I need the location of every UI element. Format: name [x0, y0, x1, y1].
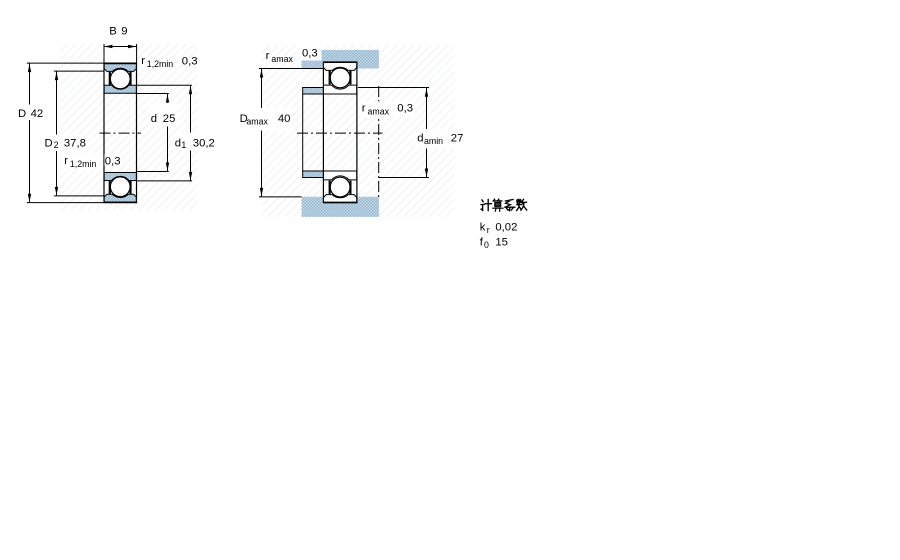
svg-text:r: r — [64, 155, 68, 167]
svg-text:0: 0 — [484, 240, 489, 250]
svg-text:37,8: 37,8 — [64, 137, 86, 149]
svg-text:15: 15 — [495, 237, 508, 249]
svg-text:0,02: 0,02 — [495, 222, 517, 234]
svg-text:D: D — [18, 108, 26, 120]
svg-text:r: r — [141, 55, 145, 67]
svg-text:d: d — [151, 113, 157, 125]
svg-text:2: 2 — [54, 140, 59, 150]
svg-text:0,3: 0,3 — [105, 155, 121, 167]
svg-text:r: r — [362, 103, 366, 115]
svg-text:1,2min: 1,2min — [147, 59, 174, 69]
svg-text:amax: amax — [368, 106, 390, 116]
svg-text:amax: amax — [271, 54, 293, 64]
svg-text:D: D — [45, 137, 53, 149]
svg-text:40: 40 — [278, 113, 291, 125]
svg-text:k: k — [480, 222, 486, 234]
svg-text:1,2min: 1,2min — [70, 159, 97, 169]
svg-text:9: 9 — [121, 25, 127, 37]
svg-text:0,3: 0,3 — [302, 48, 318, 60]
svg-text:30,2: 30,2 — [193, 137, 215, 149]
svg-text:0,3: 0,3 — [182, 56, 198, 68]
svg-text:0,3: 0,3 — [397, 103, 413, 115]
svg-text:27: 27 — [451, 132, 464, 144]
svg-text:r: r — [487, 225, 490, 235]
svg-text:1: 1 — [181, 140, 186, 150]
svg-text:d: d — [175, 137, 181, 149]
svg-text:r: r — [266, 50, 270, 62]
svg-text:B: B — [109, 25, 117, 37]
svg-text:d: d — [417, 132, 423, 144]
svg-text:25: 25 — [163, 113, 176, 125]
svg-text:amin: amin — [424, 136, 443, 146]
svg-text:amax: amax — [246, 117, 268, 127]
svg-text:42: 42 — [31, 108, 44, 120]
